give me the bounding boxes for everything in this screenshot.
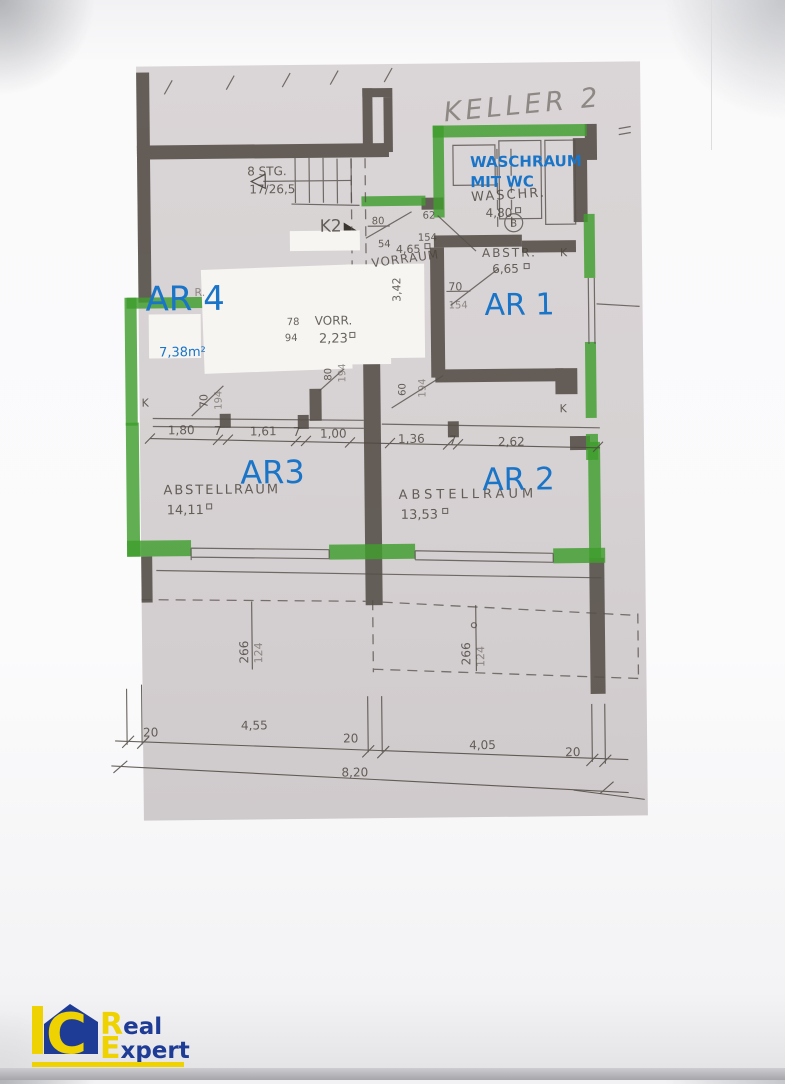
dim-vert-right-266: 266: [459, 642, 473, 665]
dim-chain-bottom-0: 20: [143, 725, 158, 739]
dim-pier-mid-80: 80: [323, 368, 334, 381]
abstr-area: 6,65: [492, 262, 519, 276]
dim-k2-80: 80: [372, 216, 385, 227]
dim-chain-bottom-3: 4,05: [469, 738, 496, 752]
dim-pier-mid-194: 194: [337, 363, 348, 382]
vorr-area: 2,23: [319, 331, 348, 346]
paper-edge-shadow: [711, 0, 712, 150]
annotation-ar3: AR3: [240, 453, 305, 492]
dim-342: 3,42: [390, 277, 403, 302]
annotation-ar4-area: 7,38m²: [159, 345, 206, 360]
k-mark-left: K: [142, 397, 150, 410]
k-mark-right-top: K: [560, 246, 568, 259]
abstellraum-left-area: 14,11: [167, 503, 204, 518]
dim-k2-54: 54: [378, 239, 391, 250]
scanned-page: { "plan": { "handwritten_title": "KELLER…: [0, 0, 785, 1080]
annotation-ar4: AR 4: [145, 279, 225, 320]
waschr-area: 4,80: [486, 206, 513, 220]
abstellraum-right-area: 13,53: [401, 508, 438, 523]
dim-vorr-78: 78: [287, 317, 300, 328]
stairs-label: 8 STG.: [247, 164, 287, 178]
dim-chain-bottom-4: 20: [565, 745, 580, 759]
dim-chain-top-6: 7: [449, 433, 457, 447]
dim-k2-154: 154: [418, 233, 437, 244]
abstr-label: ABSTR.: [482, 245, 537, 260]
stairs-ratio: 17/26,5: [249, 182, 295, 196]
dim-vert-left-124: 124: [252, 642, 265, 663]
dim-pier-right-60: 60: [397, 383, 408, 396]
annotation-ar2: AR 2: [482, 461, 555, 498]
circle-b-label: B: [510, 219, 517, 230]
dim-chain-top-0: 1,80: [168, 423, 195, 437]
real-expert-logo: C Real Expert: [26, 994, 206, 1074]
dim-chain-bottom-2: 20: [343, 731, 358, 745]
logo-letter-i: [32, 1006, 43, 1054]
dim-vert-left-266: 266: [237, 641, 251, 664]
dim-vert-right-124: 124: [474, 646, 487, 667]
k-mark-right-bottom: K: [560, 402, 568, 415]
dim-total-width: 8,20: [341, 765, 368, 779]
dim-abstr-154: 154: [449, 300, 468, 311]
dim-chain-top-1: 7: [214, 424, 222, 438]
vorr-label: VORR.: [315, 313, 353, 327]
logo-underline: [32, 1062, 184, 1067]
dim-chain-bottom-1: 4,55: [241, 718, 268, 732]
floor-plan-scan: KELLER 2 8 STG. 17/26,5 K2 62 80 154 54 …: [0, 0, 785, 1080]
dim-abstr-70: 70: [448, 280, 462, 293]
dim-62: 62: [423, 211, 436, 222]
dim-chain-top-5: 1,36: [398, 432, 425, 446]
annotation-waschraum-line2: MIT WC: [470, 173, 534, 192]
dim-chain-top-3: 7: [293, 425, 301, 439]
annotation-waschraum-line1: WASCHRAUM: [470, 152, 582, 171]
real-expert-logo-graphic: C Real Expert: [26, 994, 206, 1074]
dim-pier-right-194: 194: [417, 379, 428, 398]
dim-chain-top-4: 1,00: [320, 426, 347, 440]
logo-letter-c: C: [46, 1002, 87, 1067]
k2-label: K2: [320, 217, 342, 237]
dim-pier-left-194: 194: [213, 391, 224, 410]
dim-chain-top-2: 1,61: [250, 424, 277, 438]
dim-chain-top-7: 2,62: [498, 435, 525, 449]
scanner-edge-strip: [0, 1068, 785, 1080]
dim-vorr-94: 94: [285, 333, 298, 344]
dim-pier-left-70: 70: [197, 394, 210, 408]
annotation-ar1: AR 1: [484, 287, 554, 323]
